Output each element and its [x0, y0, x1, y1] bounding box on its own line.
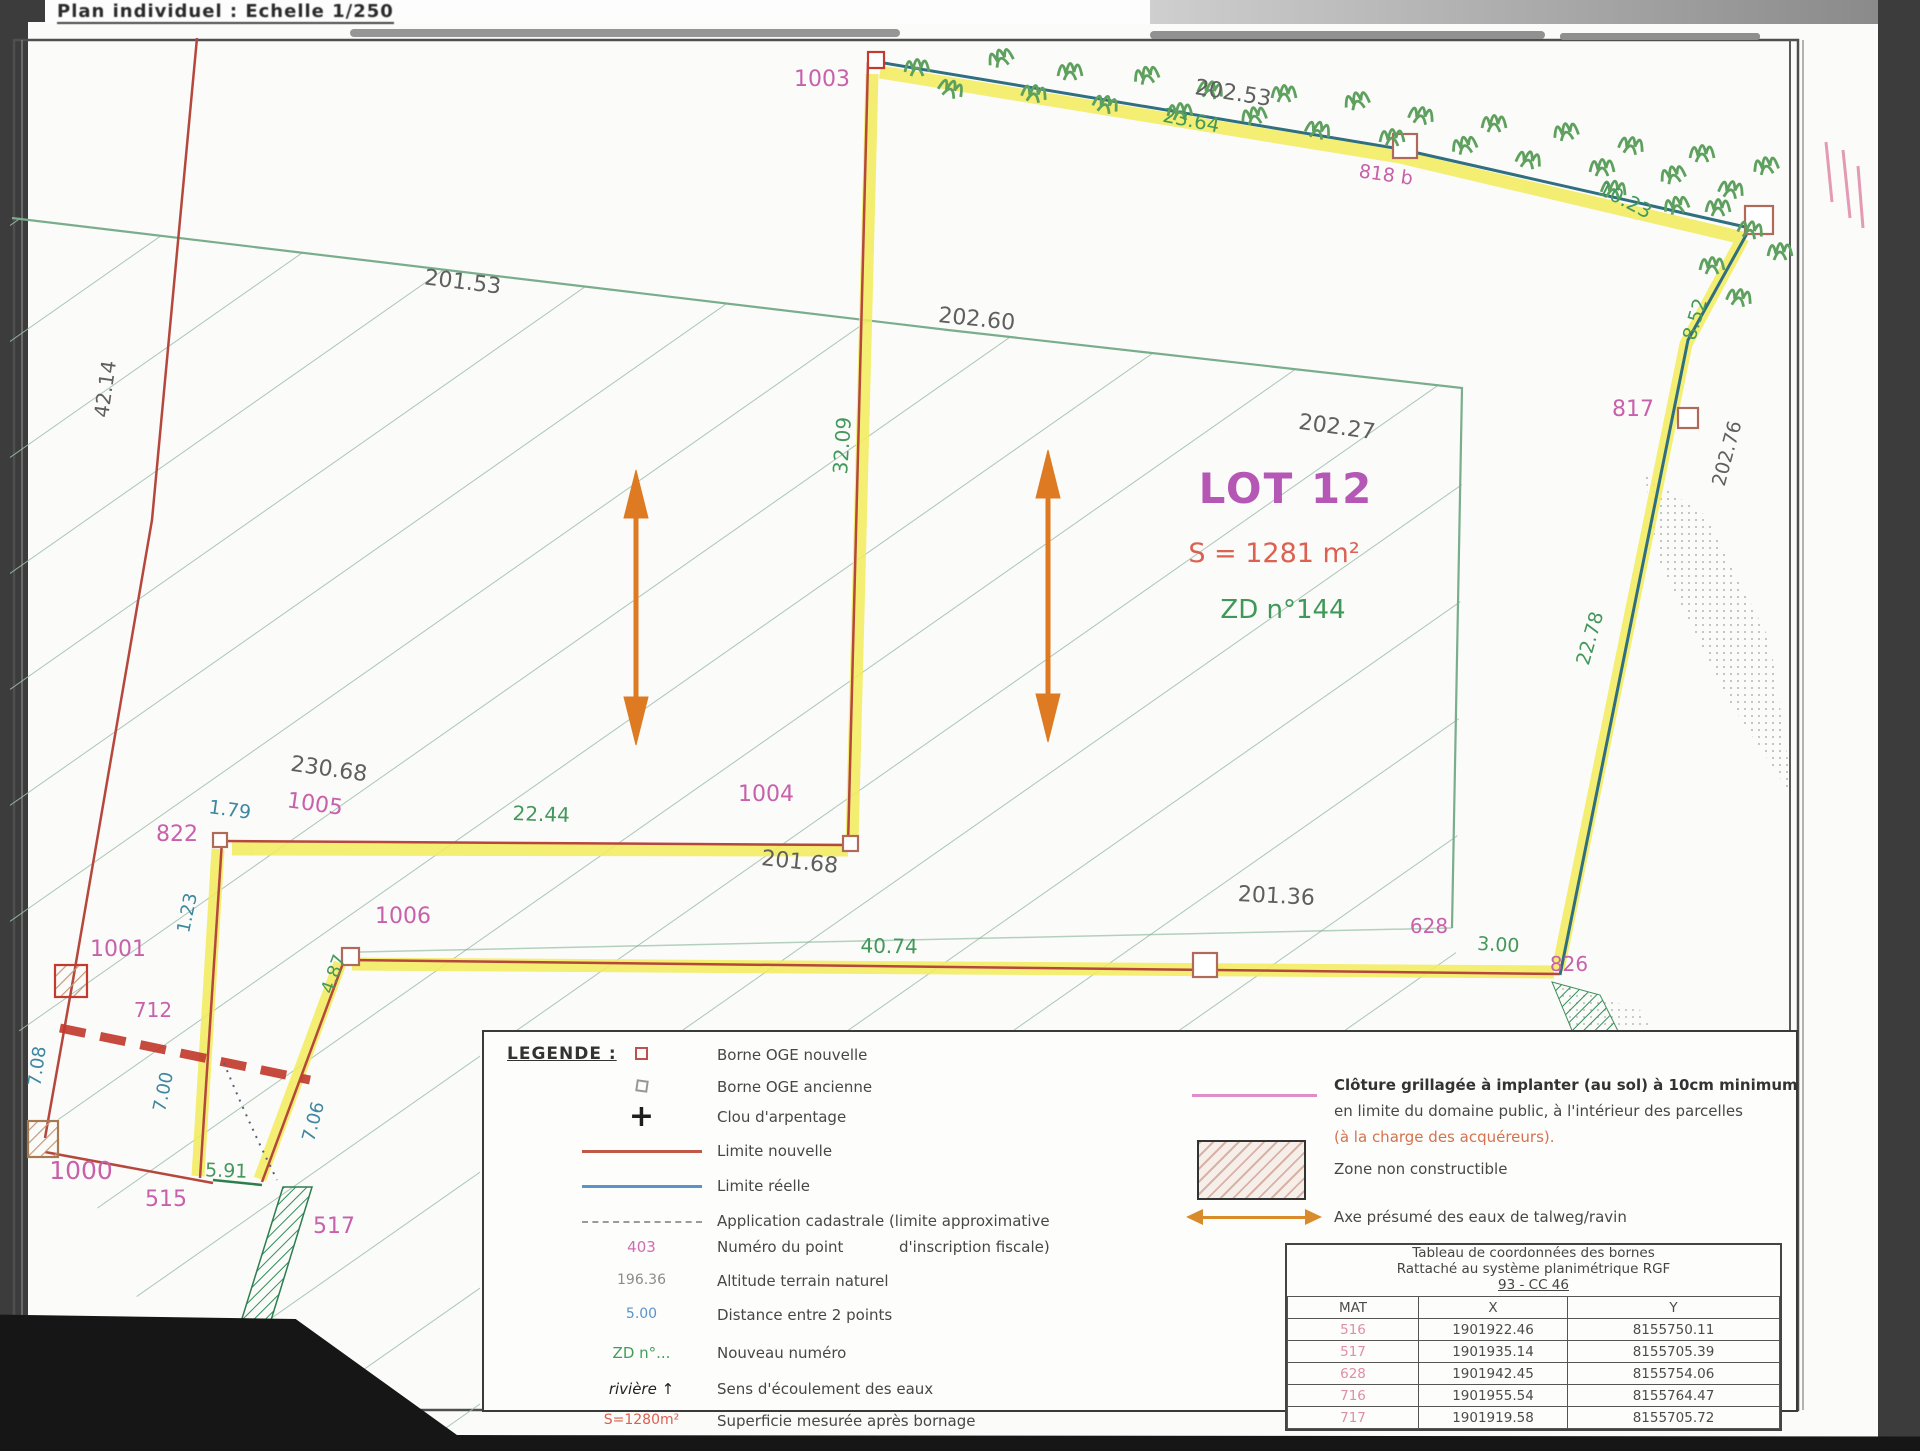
map-label: 1004	[738, 782, 794, 807]
map-label: 826	[1550, 952, 1588, 976]
map-label: 712	[134, 998, 172, 1022]
map-label: 1003	[794, 67, 850, 92]
map-label: ZD n°144	[1220, 595, 1345, 625]
map-label: 817	[1612, 397, 1654, 422]
coord-y: 8155754.06	[1568, 1363, 1780, 1385]
coord-table-row: 6281901942.458155754.06	[1288, 1363, 1780, 1385]
coord-point-number: 628	[1288, 1363, 1419, 1385]
coord-y: 8155705.72	[1568, 1407, 1780, 1429]
borne-old-square-glyph	[635, 1079, 649, 1093]
coord-y: 8155750.11	[1568, 1319, 1780, 1341]
fence-line-symbol	[1192, 1094, 1317, 1097]
coord-x: 1901942.45	[1419, 1363, 1568, 1385]
altitude-symbol: 196.36	[579, 1272, 704, 1288]
legend-item-label: Limite réelle	[717, 1177, 810, 1195]
line-blue-symbol	[579, 1177, 704, 1195]
map-label: 1006	[375, 904, 431, 929]
scan-smudge	[350, 29, 900, 37]
borne-old-square-symbol	[579, 1078, 704, 1096]
map-label: LOT 12	[1199, 464, 1374, 513]
point-number-symbol: 403	[579, 1238, 704, 1256]
vegetation-scribbles	[905, 47, 1792, 308]
legend-item-label: Distance entre 2 points	[717, 1306, 892, 1324]
legend-item: Limite nouvelle	[484, 1142, 1796, 1172]
new-number-symbol: ZD n°...	[579, 1344, 704, 1362]
flow-axis-arrow-symbol	[1196, 1216, 1312, 1219]
legend-flow-axis-label: Axe présumé des eaux de talweg/ravin	[1334, 1208, 1627, 1226]
legend-zone-label: Zone non constructible	[1334, 1160, 1507, 1178]
map-label: 5.91	[205, 1159, 248, 1182]
coord-table-title-3: 93 - CC 46	[1287, 1277, 1780, 1293]
line-red-glyph	[582, 1150, 702, 1153]
map-label: 517	[313, 1214, 355, 1239]
cross-symbol: +	[579, 1108, 704, 1126]
coord-table-title-2: Rattaché au système planimétrique RGF	[1287, 1261, 1780, 1277]
area-symbol: S=1280m²	[579, 1412, 704, 1428]
map-label: 202.53	[1193, 75, 1273, 112]
coord-x: 1901955.54	[1419, 1385, 1568, 1407]
map-label: 22.44	[512, 801, 570, 827]
map-label: 22.78	[1572, 609, 1608, 667]
coord-col-x: X	[1419, 1297, 1568, 1319]
coord-y: 8155764.47	[1568, 1385, 1780, 1407]
map-label: 23.64	[1161, 103, 1222, 137]
coord-point-number: 716	[1288, 1385, 1419, 1407]
legend-item: Limite réelle	[484, 1177, 1796, 1207]
legend-item-label: Numéro du point	[717, 1238, 843, 1256]
legend-fence-line3: (à la charge des acquéreurs).	[1334, 1128, 1555, 1146]
legend-item-label: Borne OGE nouvelle	[717, 1046, 867, 1064]
legend-item6-continuation: d'inscription fiscale)	[899, 1238, 1050, 1256]
legend-item-label: Sens d'écoulement des eaux	[717, 1380, 933, 1398]
coord-y: 8155705.39	[1568, 1341, 1780, 1363]
non-constructible-zone-symbol	[1197, 1140, 1306, 1200]
coord-col-y: Y	[1568, 1297, 1780, 1319]
line-blue-glyph	[582, 1185, 702, 1188]
coord-x: 1901922.46	[1419, 1319, 1568, 1341]
talus-stipple	[1645, 475, 1788, 790]
coord-point-number: 516	[1288, 1319, 1419, 1341]
coord-point-number: 717	[1288, 1407, 1419, 1429]
coord-table-row: 5161901922.468155750.11	[1288, 1319, 1780, 1341]
map-label: 1000	[49, 1156, 113, 1185]
legend-item-label: Limite nouvelle	[717, 1142, 832, 1160]
map-label: 8.52	[1679, 296, 1712, 343]
legend-item-label: Application cadastrale (limite approxima…	[717, 1212, 1050, 1230]
borne-new-square-symbol	[579, 1046, 704, 1064]
map-label: 628	[1410, 914, 1448, 938]
map-label: 40.74	[860, 934, 918, 959]
legend-item-label: Superficie mesurée après bornage	[717, 1412, 975, 1430]
coord-x: 1901935.14	[1419, 1341, 1568, 1363]
flow-symbol: rivière ↑	[579, 1380, 704, 1398]
coord-point-number: 517	[1288, 1341, 1419, 1363]
map-label: S = 1281 m²	[1188, 538, 1359, 569]
line-red-symbol	[579, 1142, 704, 1160]
line-dash-symbol	[579, 1212, 704, 1230]
legend-item: Borne OGE nouvelle	[484, 1046, 1796, 1076]
scan-pink-marks	[1826, 142, 1863, 228]
legend-fence-line2: en limite du domaine public, à l'intérie…	[1334, 1102, 1743, 1120]
legend-item-label: Clou d'arpentage	[717, 1108, 846, 1126]
map-label: 3.00	[1477, 933, 1520, 957]
line-dash-glyph	[582, 1221, 702, 1223]
legend-item-label: Borne OGE ancienne	[717, 1078, 872, 1096]
coord-col-mat: MAT	[1288, 1297, 1419, 1319]
coord-table-grid: MAT X Y 5161901922.468155750.11517190193…	[1287, 1296, 1780, 1429]
survey-plan-screenshot: Plan individuel : Echelle 1/250	[0, 0, 1920, 1451]
map-label: 1001	[90, 937, 146, 962]
distance-symbol: 5.00	[579, 1306, 704, 1322]
map-label: 515	[145, 1187, 187, 1212]
borne-new-square-glyph	[635, 1047, 648, 1060]
map-label: 32.09	[828, 416, 856, 475]
coord-x: 1901919.58	[1419, 1407, 1568, 1429]
legend-item-label: Altitude terrain naturel	[717, 1272, 889, 1290]
map-label: 202.76	[1708, 418, 1746, 488]
coord-table-row: 7171901919.588155705.72	[1288, 1407, 1780, 1429]
map-label: 201.36	[1237, 882, 1315, 911]
coord-table-row: 7161901955.548155764.47	[1288, 1385, 1780, 1407]
coordinate-table: Tableau de coordonnées des bornes Rattac…	[1285, 1243, 1782, 1431]
map-label: 822	[156, 822, 198, 847]
coord-table-title-1: Tableau de coordonnées des bornes	[1287, 1245, 1780, 1261]
legend-fence-line1: Clôture grillagée à implanter (au sol) à…	[1334, 1076, 1798, 1094]
scan-smudge	[1560, 33, 1760, 40]
coord-table-row: 5171901935.148155705.39	[1288, 1341, 1780, 1363]
legend-item-label: Nouveau numéro	[717, 1344, 846, 1362]
scan-smudge	[1150, 31, 1545, 39]
